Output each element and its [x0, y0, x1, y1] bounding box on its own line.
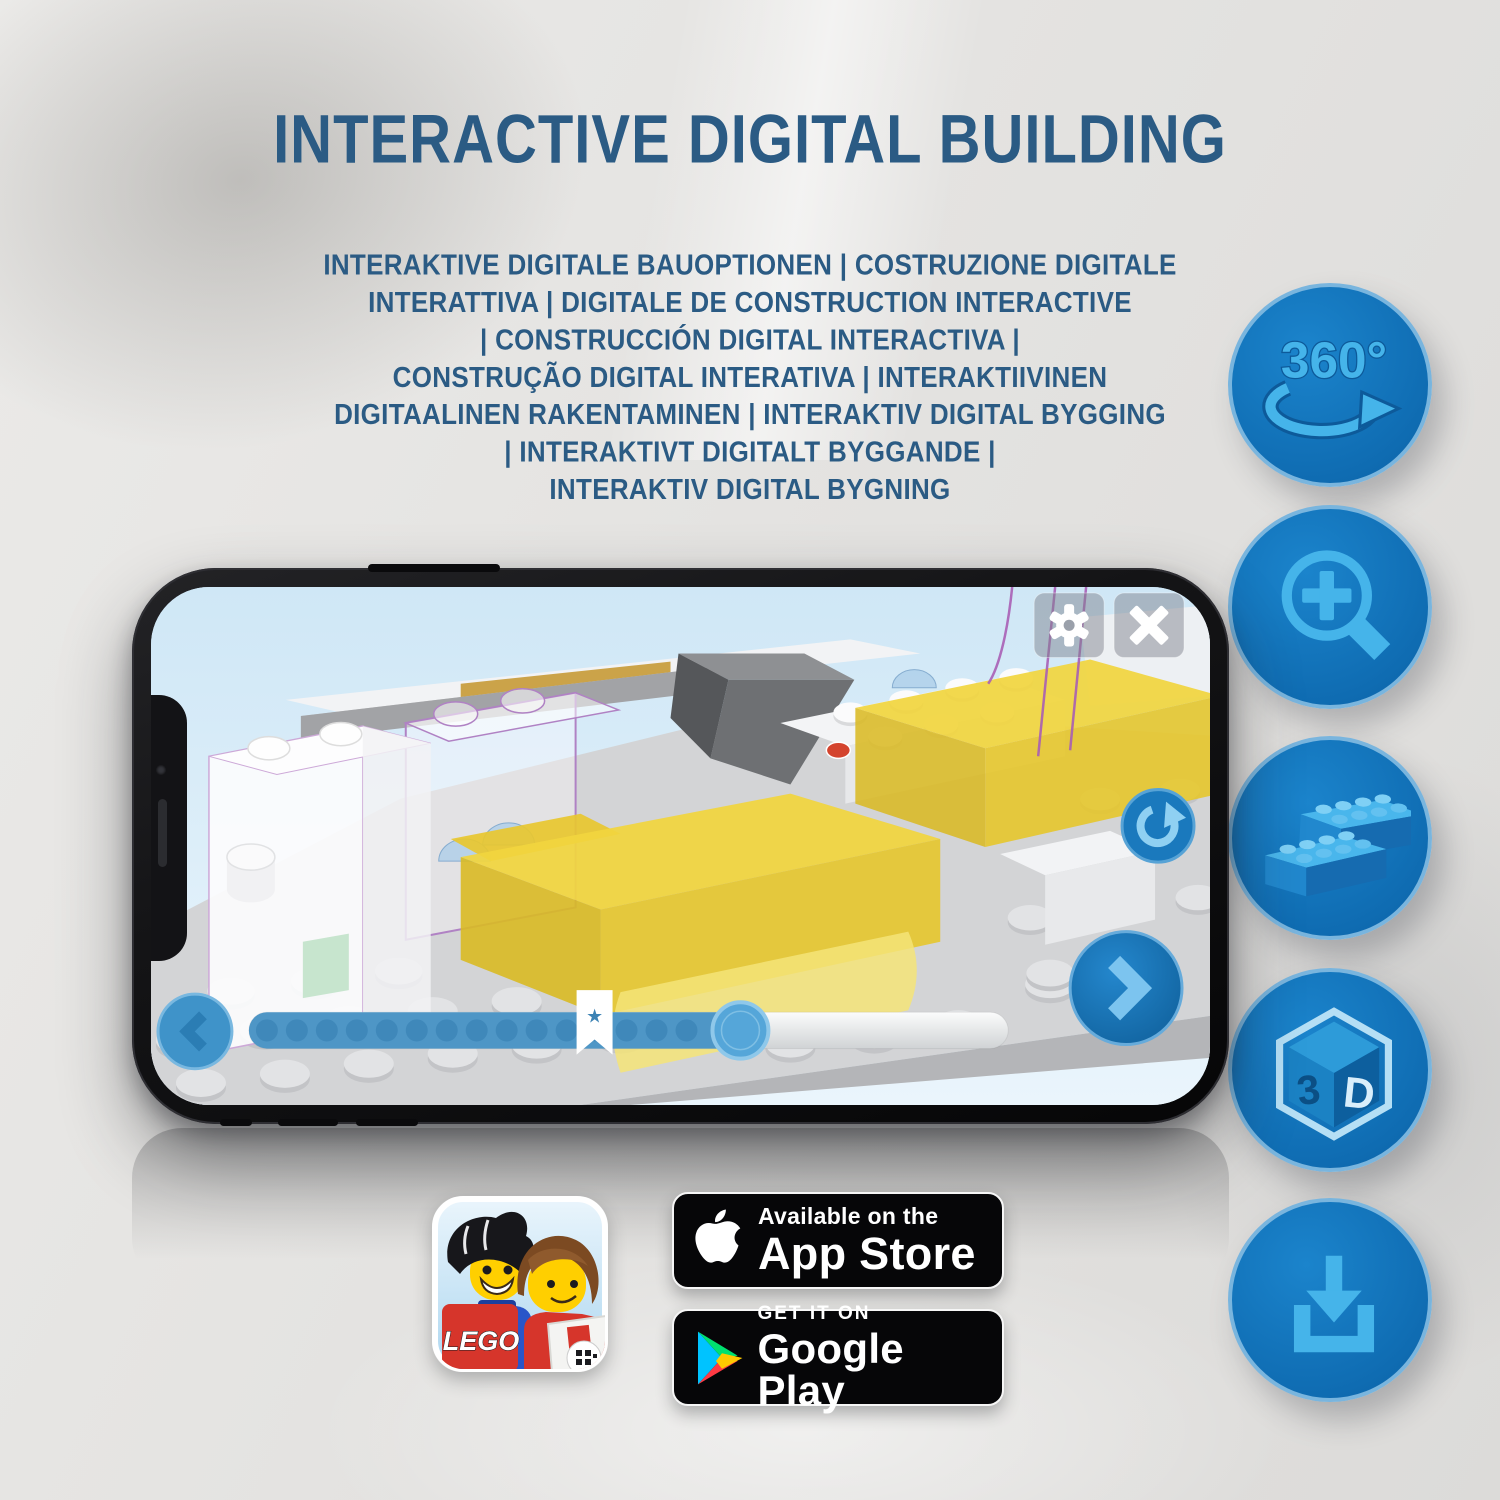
phone-screen: ★ — [151, 587, 1210, 1105]
rotate-button[interactable] — [1122, 790, 1194, 863]
phone-notch — [151, 695, 187, 961]
svg-text:LEGO: LEGO — [443, 1326, 520, 1356]
close-button[interactable] — [1114, 593, 1184, 657]
rotate-360-icon: 360° — [1257, 312, 1411, 466]
lego-logo: LEGO — [442, 1304, 519, 1372]
lego-bricks-icon — [1257, 765, 1411, 919]
app-store-name: App Store — [758, 1231, 976, 1276]
badge-360-label: 360° — [1281, 332, 1387, 389]
zoom-in-icon — [1257, 534, 1411, 688]
progress-step-dots — [256, 1019, 698, 1041]
google-play-icon — [674, 1328, 757, 1388]
apple-icon — [674, 1208, 758, 1274]
zoom-badge — [1228, 505, 1432, 709]
download-badge — [1228, 1198, 1432, 1402]
app-store-badge[interactable]: Available on the App Store — [672, 1192, 1004, 1289]
download-icon — [1257, 1227, 1411, 1381]
next-step-button[interactable] — [1070, 932, 1182, 1045]
page-background: INTERACTIVE DIGITAL BUILDING INTERAKTIVE… — [0, 0, 1500, 1500]
cube-letter-d: D — [1341, 1068, 1377, 1119]
phone-speaker-slit — [356, 1119, 418, 1126]
page-title: INTERACTIVE DIGITAL BUILDING — [0, 100, 1500, 179]
bricks-badge — [1228, 736, 1432, 940]
lego-3d-scene: ★ — [151, 587, 1210, 1105]
lego-app-icon-art: LEGO — [432, 1196, 608, 1372]
google-play-name: Google Play — [757, 1328, 1002, 1412]
cube-3d-badge: 3 D — [1228, 968, 1432, 1172]
previous-step-button[interactable] — [158, 994, 232, 1069]
google-play-tagline: GET IT ON — [757, 1304, 1002, 1323]
phone-mockup: ★ — [132, 568, 1229, 1124]
google-play-badge[interactable]: GET IT ON Google Play — [672, 1309, 1004, 1406]
phone-speaker-slit — [278, 1119, 338, 1126]
lego-app-icon[interactable]: LEGO — [432, 1196, 608, 1372]
earpiece-icon — [158, 799, 167, 867]
phone-side-button — [368, 564, 500, 572]
3d-cube-icon: 3 D — [1257, 997, 1411, 1151]
rotate-360-badge: 360° — [1228, 283, 1432, 487]
app-store-tagline: Available on the — [758, 1205, 976, 1228]
star-bookmark-icon: ★ — [586, 1005, 603, 1027]
camera-icon — [156, 765, 166, 775]
settings-button[interactable] — [1034, 593, 1104, 657]
phone-speaker-slit — [220, 1119, 252, 1126]
